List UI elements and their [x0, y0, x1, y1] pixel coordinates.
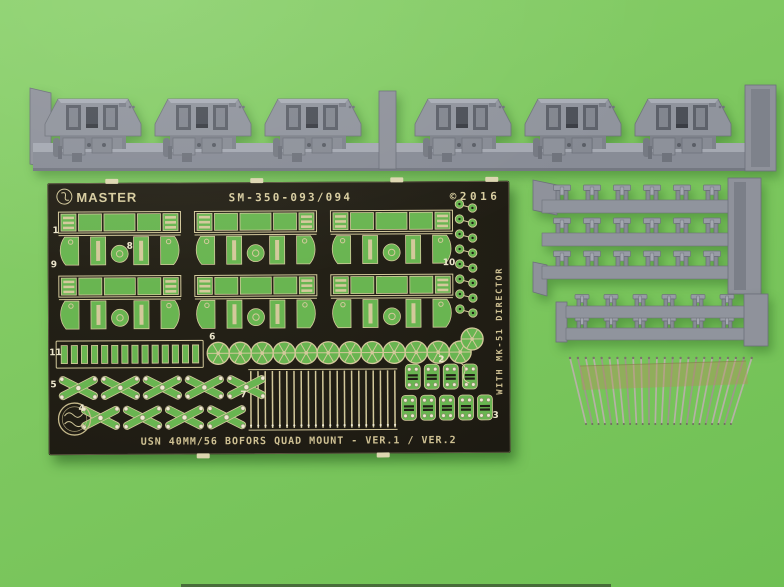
master-logo-icon: [57, 189, 72, 204]
fret-tab: [250, 178, 263, 183]
part-label-1: 1: [53, 226, 59, 236]
fret-tab: [485, 177, 498, 182]
fret-tab: [390, 177, 403, 182]
part-label-11: 11: [49, 348, 62, 358]
part-label-3: 3: [492, 411, 498, 421]
part-label-9: 9: [51, 260, 57, 270]
fret-copyright: ©2016: [450, 190, 501, 203]
part-label-10: 10: [443, 258, 456, 268]
part-label-7: 7: [240, 390, 246, 400]
parts-tray-large: [528, 174, 766, 300]
fret-tab: [377, 452, 390, 457]
parts-tray-small: [552, 292, 774, 350]
product-photo: MASTER SM-350-093/094 ©2016 USN 40MM/56 …: [0, 0, 784, 587]
photo-etch-fret: MASTER SM-350-093/094 ©2016 USN 40MM/56 …: [47, 181, 510, 455]
brand-text: MASTER: [76, 190, 137, 205]
tray-castings: [554, 185, 721, 267]
fret-title: USN 40MM/56 BOFORS QUAD MOUNT - VER.1 / …: [141, 435, 457, 448]
north-star-stamp-icon: [58, 403, 90, 435]
part-label-4: 4: [78, 404, 84, 414]
fret-artwork: MASTER SM-350-093/094 ©2016 USN 40MM/56 …: [47, 181, 510, 455]
sprue-middle-plate: [379, 91, 396, 169]
part-label-2: 2: [438, 355, 444, 365]
part-label-6: 6: [209, 332, 215, 342]
part-label-8: 8: [127, 242, 133, 252]
barrel-bundle: [560, 348, 766, 434]
fret-side-note: WITH MK-51 DIRECTOR: [495, 267, 506, 395]
fret-tab: [105, 179, 118, 184]
fret-part-number: SM-350-093/094: [229, 191, 353, 205]
cross-disc-part: [461, 328, 483, 350]
part-label-5: 5: [50, 380, 56, 390]
fret-tab: [197, 453, 210, 458]
resin-sprue-strip: [18, 78, 782, 178]
etched-parts: [55, 200, 492, 431]
